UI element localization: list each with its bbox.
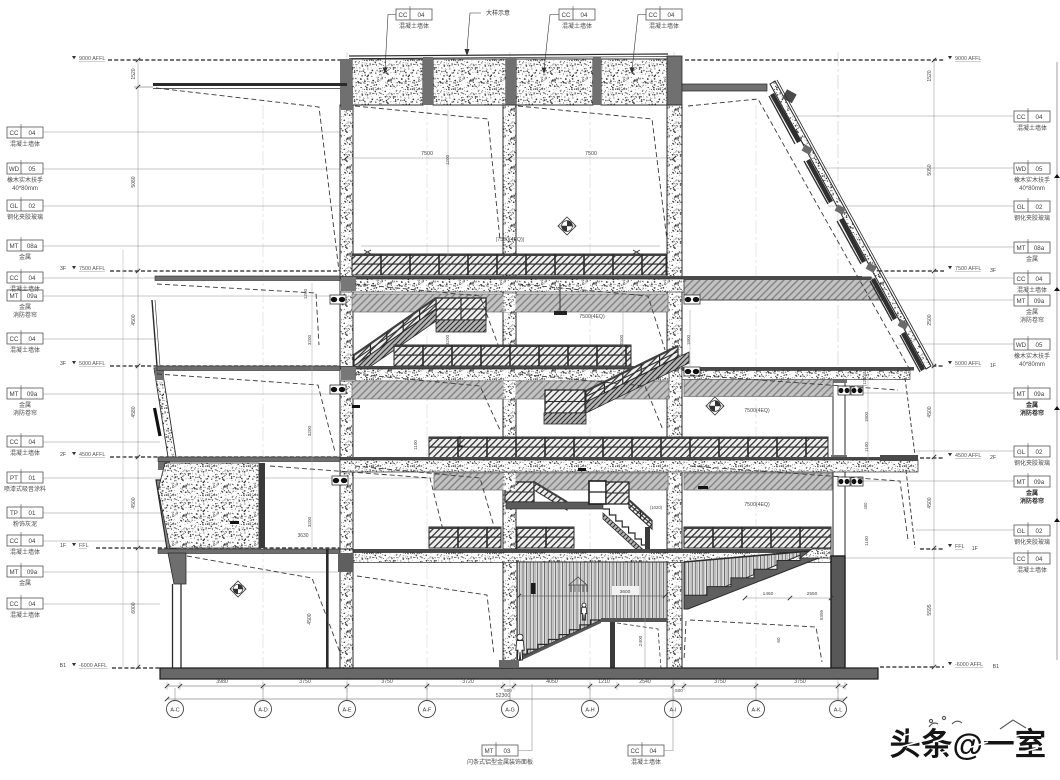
svg-text:MT: MT (1017, 245, 1026, 252)
svg-text:3F: 3F (990, 268, 996, 274)
svg-text:混凝土墙体: 混凝土墙体 (10, 449, 40, 457)
svg-text:GL: GL (1017, 449, 1026, 456)
svg-text:3750: 3750 (381, 679, 393, 685)
svg-text:1520: 1520 (131, 68, 137, 79)
svg-text:GL: GL (1017, 204, 1026, 211)
svg-text:3750: 3750 (299, 679, 311, 685)
svg-text:B1: B1 (993, 664, 999, 670)
svg-text:2550: 2550 (807, 591, 818, 597)
svg-text:金属: 金属 (19, 401, 31, 409)
svg-text:混凝土墙体: 混凝土墙体 (10, 611, 40, 619)
svg-text:A-G: A-G (505, 708, 515, 714)
svg-text:02: 02 (1036, 528, 1043, 535)
svg-text:40*80mm: 40*80mm (1019, 186, 1045, 192)
svg-text:04: 04 (581, 12, 588, 19)
svg-text:PT: PT (10, 475, 18, 482)
svg-text:2500: 2500 (619, 334, 624, 345)
svg-text:消防卷帘: 消防卷帘 (1020, 409, 1044, 417)
svg-text:钢化夹胶玻璃: 钢化夹胶玻璃 (1014, 459, 1050, 467)
svg-text:52300: 52300 (496, 693, 511, 699)
svg-text:40*80mm: 40*80mm (12, 186, 38, 192)
svg-text:3200: 3200 (307, 425, 312, 436)
svg-text:A-K: A-K (752, 708, 761, 714)
svg-text:7500(4EQ): 7500(4EQ) (579, 314, 605, 320)
svg-text:09a: 09a (27, 569, 38, 576)
svg-text:3F: 3F (60, 361, 66, 367)
svg-text:CC: CC (10, 275, 19, 282)
svg-text:CC: CC (1017, 556, 1026, 563)
svg-text:WD: WD (1016, 166, 1027, 173)
svg-text:金属: 金属 (1026, 255, 1038, 263)
svg-text:A-D: A-D (258, 708, 267, 714)
svg-text:04: 04 (29, 275, 36, 282)
svg-text:CC: CC (1017, 276, 1026, 283)
svg-text:橡木实木扶手: 橡木实木扶手 (7, 176, 43, 184)
svg-text:400: 400 (863, 502, 868, 510)
svg-text:GL: GL (1017, 528, 1026, 535)
svg-text:混凝土墙体: 混凝土墙体 (1017, 566, 1047, 574)
svg-text:MT: MT (1017, 391, 1026, 398)
svg-text:2500: 2500 (927, 314, 933, 325)
svg-text:MT: MT (1017, 479, 1026, 486)
svg-text:消防卷帘: 消防卷帘 (1020, 316, 1044, 324)
svg-text:金属: 金属 (1025, 401, 1038, 409)
svg-text:MT: MT (10, 391, 19, 398)
svg-text:02: 02 (29, 203, 36, 210)
svg-text:04: 04 (29, 336, 36, 343)
svg-text:混凝土墙体: 混凝土墙体 (631, 758, 661, 766)
svg-text:CC: CC (562, 12, 571, 19)
svg-text:04: 04 (1036, 556, 1043, 563)
svg-text:05: 05 (1036, 166, 1043, 173)
svg-text:01: 01 (29, 510, 36, 517)
svg-text:7500: 7500 (421, 151, 433, 157)
svg-text:09a: 09a (27, 293, 38, 300)
svg-text:4500: 4500 (131, 314, 137, 325)
svg-text:金属: 金属 (19, 303, 31, 311)
svg-text:04: 04 (668, 12, 675, 19)
svg-text:MT: MT (10, 293, 19, 300)
svg-text:MT: MT (10, 569, 19, 576)
svg-text:(1280): (1280) (862, 373, 867, 386)
svg-text:3750: 3750 (714, 679, 726, 685)
svg-text:CC: CC (10, 336, 19, 343)
svg-text:04: 04 (29, 130, 36, 137)
svg-text:05: 05 (1036, 342, 1043, 349)
svg-text:3750: 3750 (794, 679, 806, 685)
svg-text:1200: 1200 (303, 288, 308, 299)
svg-text:MT: MT (1017, 298, 1026, 305)
svg-text:09a: 09a (1034, 479, 1045, 486)
svg-text:3980: 3980 (216, 679, 228, 685)
svg-text:04: 04 (1036, 114, 1043, 121)
svg-text:7500(4EQ): 7500(4EQ) (744, 502, 770, 508)
svg-text:A-C: A-C (170, 708, 179, 714)
svg-text:CC: CC (10, 601, 19, 608)
svg-text:A-H: A-H (585, 708, 594, 714)
svg-text:混凝土墙体: 混凝土墙体 (1017, 286, 1047, 294)
svg-text:CC: CC (649, 12, 658, 19)
svg-text:MT: MT (485, 748, 494, 755)
svg-text:3600: 3600 (620, 589, 631, 595)
svg-text:金属: 金属 (19, 253, 31, 261)
svg-text:7500: 7500 (585, 151, 597, 157)
svg-text:WD: WD (9, 166, 20, 173)
svg-text:(7500(4EQ)): (7500(4EQ)) (496, 237, 525, 243)
svg-text:04: 04 (29, 601, 36, 608)
svg-text:09a: 09a (1034, 298, 1045, 305)
svg-text:500: 500 (675, 688, 683, 693)
svg-text:04: 04 (29, 439, 36, 446)
svg-text:04: 04 (1036, 276, 1043, 283)
svg-text:09a: 09a (1034, 391, 1045, 398)
svg-text:7500(4EQ): 7500(4EQ) (744, 408, 770, 414)
svg-text:A-E: A-E (343, 708, 352, 714)
svg-text:2F: 2F (60, 452, 66, 458)
svg-text:粉饰灰泥: 粉饰灰泥 (13, 520, 37, 528)
svg-text:1F: 1F (990, 363, 996, 369)
svg-text:混凝土墙体: 混凝土墙体 (10, 346, 40, 354)
svg-text:钢化夹胶玻璃: 钢化夹胶玻璃 (7, 213, 43, 221)
svg-text:4500: 4500 (131, 497, 137, 508)
svg-text:3720: 3720 (462, 679, 474, 685)
svg-text:4500: 4500 (927, 406, 933, 417)
svg-text:橡木实木扶手: 橡木实木扶手 (1014, 352, 1050, 360)
svg-text:4580: 4580 (131, 406, 137, 417)
svg-text:1800: 1800 (686, 334, 691, 345)
svg-text:CC: CC (10, 538, 19, 545)
svg-text:闪条式铝型金属装饰面板: 闪条式铝型金属装饰面板 (467, 758, 533, 766)
svg-text:金属: 金属 (19, 579, 31, 587)
svg-text:05: 05 (29, 166, 36, 173)
svg-text:TP: TP (10, 510, 18, 517)
svg-text:6000: 6000 (131, 602, 137, 613)
svg-text:CC: CC (10, 439, 19, 446)
svg-text:08a: 08a (1034, 245, 1045, 252)
svg-text:5050: 5050 (927, 164, 933, 175)
svg-text:3F: 3F (60, 266, 66, 272)
svg-text:(1020): (1020) (650, 505, 663, 510)
svg-text:混凝土墙体: 混凝土墙体 (1017, 124, 1047, 132)
svg-text:3200: 3200 (307, 516, 312, 527)
svg-text:04: 04 (29, 538, 36, 545)
svg-text:1460: 1460 (763, 591, 774, 597)
svg-text:MT: MT (10, 243, 19, 250)
svg-text:消防卷帘: 消防卷帘 (1020, 497, 1044, 505)
svg-text:混凝土墙体: 混凝土墙体 (649, 22, 679, 30)
svg-text:A-F: A-F (423, 708, 432, 714)
svg-text:1100: 1100 (413, 440, 418, 450)
svg-text:CC: CC (399, 12, 408, 19)
svg-text:混凝土墙体: 混凝土墙体 (10, 285, 40, 293)
svg-text:1520: 1520 (927, 70, 933, 81)
svg-text:消防卷帘: 消防卷帘 (13, 409, 37, 417)
svg-text:04: 04 (650, 748, 657, 755)
svg-text:5595: 5595 (927, 604, 933, 615)
svg-text:2400: 2400 (638, 635, 644, 646)
svg-text:喷漆式吸音涂料: 喷漆式吸音涂料 (4, 485, 46, 493)
svg-text:02: 02 (1036, 204, 1043, 211)
svg-text:钢化夹胶玻璃: 钢化夹胶玻璃 (1014, 214, 1050, 222)
svg-text:1100: 1100 (864, 536, 869, 546)
svg-text:1210: 1210 (598, 679, 610, 685)
svg-text:01: 01 (29, 475, 36, 482)
svg-text:1100: 1100 (864, 442, 869, 452)
svg-text:40*80mm: 40*80mm (1019, 362, 1045, 368)
svg-text:橡木实木扶手: 橡木实木扶手 (1014, 176, 1050, 184)
svg-text:08a: 08a (27, 243, 38, 250)
svg-text:金属: 金属 (1026, 308, 1038, 316)
svg-text:1F: 1F (60, 543, 66, 549)
svg-text:金属: 金属 (1025, 489, 1038, 497)
svg-text:1200: 1200 (445, 154, 450, 165)
svg-text:钢化夹胶玻璃: 钢化夹胶玻璃 (1014, 538, 1050, 546)
svg-text:5395: 5395 (819, 609, 824, 620)
svg-text:02: 02 (1036, 449, 1043, 456)
svg-text:09a: 09a (27, 391, 38, 398)
svg-text:A-L: A-L (834, 708, 842, 714)
svg-text:混凝土墙体: 混凝土墙体 (562, 22, 592, 30)
svg-text:5080: 5080 (131, 176, 137, 187)
svg-text:GL: GL (10, 203, 19, 210)
svg-text:1F: 1F (972, 546, 978, 552)
svg-text:2F: 2F (990, 455, 996, 461)
svg-text:CC: CC (631, 748, 640, 755)
svg-text:CC: CC (10, 130, 19, 137)
svg-text:4050: 4050 (546, 679, 558, 685)
svg-text:2540: 2540 (639, 679, 651, 685)
svg-text:04: 04 (418, 12, 425, 19)
svg-text:WD: WD (1016, 342, 1027, 349)
svg-text:混凝土墙体: 混凝土墙体 (10, 140, 40, 148)
svg-text:3200: 3200 (445, 334, 450, 345)
svg-text:大样示意: 大样示意 (486, 9, 510, 17)
svg-text:混凝土墙体: 混凝土墙体 (399, 22, 429, 30)
svg-text:CC: CC (1017, 114, 1026, 121)
svg-text:消防卷帘: 消防卷帘 (13, 311, 37, 319)
svg-text:头条@一室: 头条@一室 (890, 727, 1047, 762)
svg-text:03: 03 (504, 748, 511, 755)
svg-text:1800: 1800 (864, 411, 869, 422)
svg-text:3630: 3630 (297, 533, 308, 539)
svg-text:3200: 3200 (307, 334, 312, 345)
svg-text:4500: 4500 (927, 497, 933, 508)
svg-text:B1: B1 (60, 663, 66, 669)
svg-text:混凝土墙体: 混凝土墙体 (10, 548, 40, 556)
svg-text:4500: 4500 (307, 613, 313, 624)
svg-text:60: 60 (776, 637, 781, 643)
